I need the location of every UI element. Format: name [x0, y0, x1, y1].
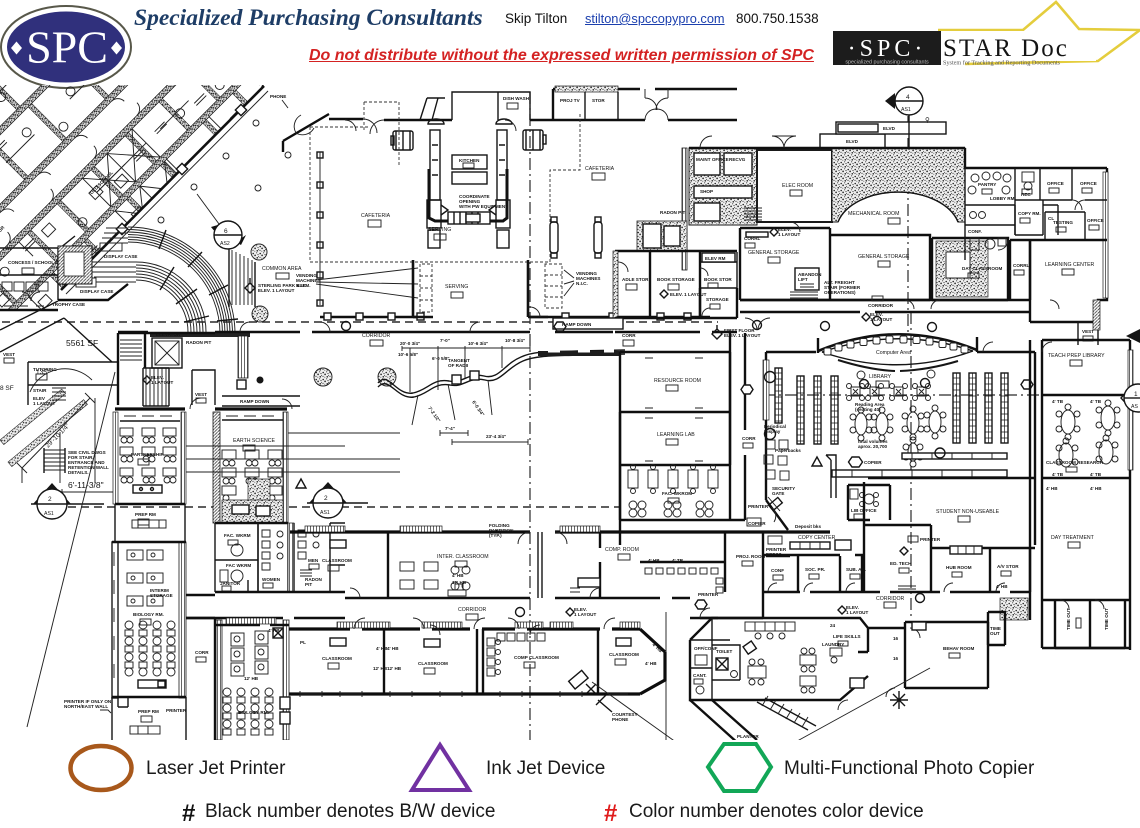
svg-text:INTER. CLASSROOM: INTER. CLASSROOM: [437, 554, 489, 560]
svg-text:CLASSROOM: CLASSROOM: [322, 558, 352, 563]
svg-text:COMP. ROOM: COMP. ROOM: [605, 547, 639, 553]
svg-text:2: 2: [48, 496, 52, 503]
svg-text:PROJ TV: PROJ TV: [560, 98, 581, 103]
svg-text:LIBRARY: LIBRARY: [869, 374, 892, 380]
svg-text:RADON PIT: RADON PIT: [186, 340, 211, 345]
svg-text:OFFICE: OFFICE: [1047, 181, 1064, 186]
svg-text:(TYP.): (TYP.): [489, 533, 502, 538]
svg-text:12' HB: 12' HB: [452, 580, 467, 585]
svg-text:SOC. PR.: SOC. PR.: [805, 567, 825, 572]
svg-text:16: 16: [893, 656, 899, 661]
svg-text:PL: PL: [300, 640, 306, 645]
svg-text:2: 2: [324, 495, 328, 502]
svg-text:FAC. WKRM: FAC. WKRM: [224, 533, 251, 538]
svg-text:REC: REC: [1021, 192, 1031, 197]
svg-text:12' HB: 12' HB: [244, 676, 259, 681]
svg-text:20'-0 3/4": 20'-0 3/4": [400, 341, 420, 346]
svg-text:AS1: AS1: [901, 107, 911, 113]
svg-text:Deposit bks: Deposit bks: [795, 524, 821, 529]
svg-text:OFFICE: OFFICE: [1080, 181, 1097, 186]
svg-text:STORAGE: STORAGE: [706, 297, 729, 302]
svg-text:COPIER: COPIER: [864, 460, 882, 465]
svg-text:PIT: PIT: [305, 582, 312, 587]
svg-text:⚲: ⚲: [925, 116, 930, 124]
svg-text:COPY CENTER: COPY CENTER: [798, 535, 836, 541]
svg-text:aprox. 20,700: aprox. 20,700: [858, 444, 888, 449]
svg-text:4' HB: 4' HB: [1046, 486, 1058, 491]
svg-text:TEACH PREP LIBRARY: TEACH PREP LIBRARY: [1048, 353, 1105, 359]
svg-text:10'-8 3/4": 10'-8 3/4": [505, 338, 525, 343]
svg-text:OFF/CONF: OFF/CONF: [694, 646, 718, 651]
svg-text:STUDENT NON-USEABLE: STUDENT NON-USEABLE: [936, 509, 1000, 515]
svg-text:CONF.: CONF.: [968, 229, 982, 234]
svg-text:OPERATIONS): OPERATIONS): [824, 290, 856, 295]
svg-text:4' HB: 4' HB: [996, 584, 1008, 589]
svg-text:A/V STOR: A/V STOR: [997, 564, 1019, 569]
svg-text:NORTH/EAST WALL: NORTH/EAST WALL: [64, 704, 108, 709]
svg-text:PROJ. ROOM: PROJ. ROOM: [736, 554, 766, 559]
svg-text:PRINTER: PRINTER: [166, 708, 187, 713]
svg-text:AS2: AS2: [220, 241, 230, 247]
svg-text:6: 6: [224, 228, 228, 235]
svg-text:specialized purchasing consult: specialized purchasing consultants: [845, 60, 929, 66]
svg-text:12' HB: 12' HB: [387, 666, 402, 671]
svg-text:SERVING: SERVING: [445, 284, 468, 290]
svg-text:SERVING: SERVING: [428, 227, 451, 233]
svg-text:CORRIDOR: CORRIDOR: [876, 596, 904, 602]
svg-text:GENERAL STORAGE: GENERAL STORAGE: [858, 254, 910, 260]
svg-text:OF RADII: OF RADII: [448, 363, 468, 368]
svg-text:AS: AS: [1131, 404, 1138, 410]
svg-text:WITH PW EQUIPMENT: WITH PW EQUIPMENT: [459, 204, 508, 209]
svg-text:DAY TREATMENT: DAY TREATMENT: [1051, 535, 1095, 541]
svg-text:JANITOR: JANITOR: [220, 581, 241, 586]
svg-text:LOBBY RM.: LOBBY RM.: [990, 196, 1016, 201]
svg-text:FAC WKRM: FAC WKRM: [226, 563, 251, 568]
svg-text:1 LAYOUT: 1 LAYOUT: [574, 612, 596, 617]
svg-text:LEARNING LAB: LEARNING LAB: [657, 432, 695, 438]
svg-text:1 LAYOUT: 1 LAYOUT: [33, 401, 55, 406]
svg-text:#: #: [604, 800, 617, 827]
svg-text:12' HB: 12' HB: [373, 666, 388, 671]
svg-text:CORR: CORR: [742, 436, 756, 441]
svg-text:1 LAYOUT: 1 LAYOUT: [846, 610, 868, 615]
svg-text:VEST: VEST: [195, 392, 207, 397]
svg-text:TIME OUT: TIME OUT: [1104, 608, 1109, 630]
svg-text:CORRIDOR: CORRIDOR: [0, 225, 6, 247]
svg-text:PANTRY: PANTRY: [978, 182, 996, 187]
svg-text:ELVD: ELVD: [846, 139, 859, 144]
svg-text:HUB ROOM: HUB ROOM: [946, 565, 972, 570]
svg-text:6'-0 3/4": 6'-0 3/4": [471, 400, 485, 417]
svg-text:4' HB: 4' HB: [1090, 486, 1102, 491]
svg-text:VEST: VEST: [3, 352, 15, 357]
svg-text:COMP CLASSROOM: COMP CLASSROOM: [514, 655, 559, 660]
svg-text:N.I.C.: N.I.C.: [296, 283, 308, 288]
svg-text:23'-4 3/4": 23'-4 3/4": [486, 434, 506, 439]
svg-text:LIFE SKILLS: LIFE SKILLS: [833, 634, 861, 639]
svg-text:FAC. WKROM: FAC. WKROM: [662, 491, 692, 496]
svg-text:RAMP DOWN: RAMP DOWN: [240, 399, 270, 404]
svg-text:4' TB: 4' TB: [1090, 472, 1102, 477]
svg-text:CONCESS / SCHOOL STR: CONCESS / SCHOOL STR: [8, 260, 65, 265]
svg-text:COPIER: COPIER: [748, 521, 766, 526]
svg-text:SHOP: SHOP: [700, 189, 713, 194]
svg-text:LAUNDRY: LAUNDRY: [822, 642, 844, 647]
svg-text:4' TB: 4' TB: [672, 558, 684, 563]
svg-text:DETAILS.: DETAILS.: [68, 470, 89, 475]
svg-text:#: #: [182, 800, 195, 827]
svg-text:TUTORING: TUTORING: [33, 367, 57, 372]
svg-text:TROPHY CASE: TROPHY CASE: [52, 302, 85, 307]
svg-text:PRINTER: PRINTER: [748, 504, 769, 509]
svg-text:DISH WASH: DISH WASH: [503, 96, 530, 101]
svg-text:4: 4: [906, 94, 910, 101]
svg-text:CLASSROOM: CLASSROOM: [609, 652, 639, 657]
svg-text:SPC: SPC: [26, 22, 108, 73]
svg-text:CANT.: CANT.: [693, 673, 707, 678]
svg-text:PLANTER: PLANTER: [737, 734, 759, 739]
svg-text:4' HB: 4' HB: [387, 646, 399, 651]
svg-text:8 SF: 8 SF: [0, 385, 14, 392]
svg-text:DISPLAY CASE: DISPLAY CASE: [104, 254, 137, 259]
svg-text:4' TB: 4' TB: [1052, 472, 1064, 477]
svg-text:4' TB: 4' TB: [1052, 399, 1064, 404]
svg-text:BIOLOGY RM.: BIOLOGY RM.: [238, 710, 269, 715]
svg-text:CLASSROOM: CLASSROOM: [322, 656, 352, 661]
svg-text:4' HB: 4' HB: [648, 558, 660, 563]
svg-text:Paperbacks: Paperbacks: [775, 448, 801, 453]
svg-text:10'-6 5/8": 10'-6 5/8": [398, 352, 418, 357]
svg-text:ELEC ROOM: ELEC ROOM: [782, 183, 813, 189]
svg-text:PREP RM: PREP RM: [138, 709, 159, 714]
svg-text:4' HB: 4' HB: [452, 573, 464, 578]
svg-text:OFFICE: OFFICE: [1087, 218, 1104, 223]
svg-text:STAIR: STAIR: [33, 388, 47, 393]
svg-text:GENERAL STORAGE: GENERAL STORAGE: [748, 250, 800, 256]
svg-text:CORR: CORR: [195, 650, 209, 655]
svg-text:MEN: MEN: [308, 558, 319, 563]
svg-text:DISPLAY CASE: DISPLAY CASE: [80, 289, 113, 294]
svg-text:System for Tracking and Report: System for Tracking and Reporting Docume…: [943, 60, 1061, 67]
svg-text:RECVG: RECVG: [729, 157, 746, 162]
svg-text:OUT: OUT: [990, 631, 1000, 636]
svg-text:TESTING: TESTING: [1053, 220, 1073, 225]
svg-text:DAY CLASSROOM: DAY CLASSROOM: [962, 266, 1003, 271]
svg-text:ED. TECH: ED. TECH: [890, 561, 912, 566]
svg-text:STOR: STOR: [592, 98, 605, 103]
svg-text:7'-4": 7'-4": [445, 426, 455, 431]
svg-text:VEST: VEST: [1082, 329, 1094, 334]
svg-text:10'-6 3/4": 10'-6 3/4": [468, 341, 488, 346]
svg-text:PHONE: PHONE: [270, 94, 286, 99]
svg-text:Computer Area: Computer Area: [876, 350, 911, 356]
svg-text:·SPC·: ·SPC·: [848, 36, 927, 62]
svg-text:CAFETERIA: CAFETERIA: [361, 213, 391, 219]
svg-text:AS1: AS1: [44, 511, 54, 517]
svg-text:4' HB: 4' HB: [645, 661, 657, 666]
svg-text:5561 SF: 5561 SF: [66, 338, 98, 348]
svg-text:ELEV RM: ELEV RM: [705, 256, 726, 261]
svg-text:1 LAYOUT: 1 LAYOUT: [778, 232, 800, 237]
svg-text:BIOLOGY RM.: BIOLOGY RM.: [133, 612, 164, 617]
svg-text:4' HB: 4' HB: [651, 642, 663, 654]
svg-text:CORRIDOR: CORRIDOR: [362, 333, 390, 339]
svg-text:TOILET: TOILET: [716, 649, 732, 654]
svg-text:COMMON AREA: COMMON AREA: [262, 266, 302, 272]
svg-text:4' TB: 4' TB: [1090, 399, 1102, 404]
svg-text:6'-0 5/8": 6'-0 5/8": [432, 356, 450, 361]
svg-text:WOMEN: WOMEN: [262, 577, 281, 582]
svg-text:CONF: CONF: [771, 568, 784, 573]
svg-text:CORRIDOR: CORRIDOR: [458, 607, 486, 613]
svg-text:BOOK STOR: BOOK STOR: [704, 277, 732, 282]
svg-text:MAINT OFFICE: MAINT OFFICE: [696, 157, 729, 162]
svg-text:1: 1: [1134, 391, 1138, 398]
svg-text:RADON PIT: RADON PIT: [660, 210, 685, 215]
svg-text:PRINTER: PRINTER: [698, 592, 719, 597]
svg-text:N.I.C.: N.I.C.: [576, 281, 588, 286]
svg-text:24: 24: [830, 623, 836, 628]
svg-text:CORRIDOR: CORRIDOR: [868, 303, 894, 308]
svg-text:CORRL: CORRL: [1013, 263, 1030, 268]
svg-text:BEHAV ROOM: BEHAV ROOM: [943, 646, 974, 651]
svg-text:AS1: AS1: [320, 510, 330, 516]
svg-text:LIFT: LIFT: [798, 277, 808, 282]
svg-text:ELEV. 1 LAYOUT: ELEV. 1 LAYOUT: [258, 288, 295, 293]
svg-text:CLASSROOM: CLASSROOM: [418, 661, 448, 666]
svg-text:PHONE: PHONE: [612, 717, 628, 722]
svg-text:PREP RM: PREP RM: [135, 512, 156, 517]
svg-text:KITCHEN: KITCHEN: [459, 158, 480, 163]
svg-text:7'-0": 7'-0": [440, 338, 450, 343]
svg-text:16: 16: [893, 636, 899, 641]
svg-text:COPY RM.: COPY RM.: [1018, 211, 1041, 216]
svg-text:CORR: CORR: [622, 333, 636, 338]
svg-text:LEARNING CENTER: LEARNING CENTER: [1045, 262, 1095, 268]
svg-text:STAR Doc: STAR Doc: [943, 35, 1069, 62]
svg-text:GATE: GATE: [772, 491, 784, 496]
svg-text:CLASSROOM RESEARCH: CLASSROOM RESEARCH: [1046, 460, 1104, 465]
svg-text:7'-2 1/2": 7'-2 1/2": [427, 406, 441, 423]
svg-text:TIME OUT: TIME OUT: [1066, 608, 1071, 630]
svg-text:STORAGE: STORAGE: [150, 593, 173, 598]
svg-text:ADLE STOR: ADLE STOR: [622, 277, 649, 282]
svg-text:RESOURCE ROOM: RESOURCE ROOM: [654, 378, 701, 384]
svg-text:BOOK STORAGE: BOOK STORAGE: [657, 277, 695, 282]
svg-text:MECHANICAL ROOM: MECHANICAL ROOM: [848, 211, 899, 217]
svg-text:CAFETERIA: CAFETERIA: [585, 166, 615, 172]
svg-text:ELVD: ELVD: [883, 126, 896, 131]
svg-text:EARTH SCIENCE: EARTH SCIENCE: [233, 438, 276, 444]
svg-text:4' HB: 4' HB: [268, 628, 280, 633]
